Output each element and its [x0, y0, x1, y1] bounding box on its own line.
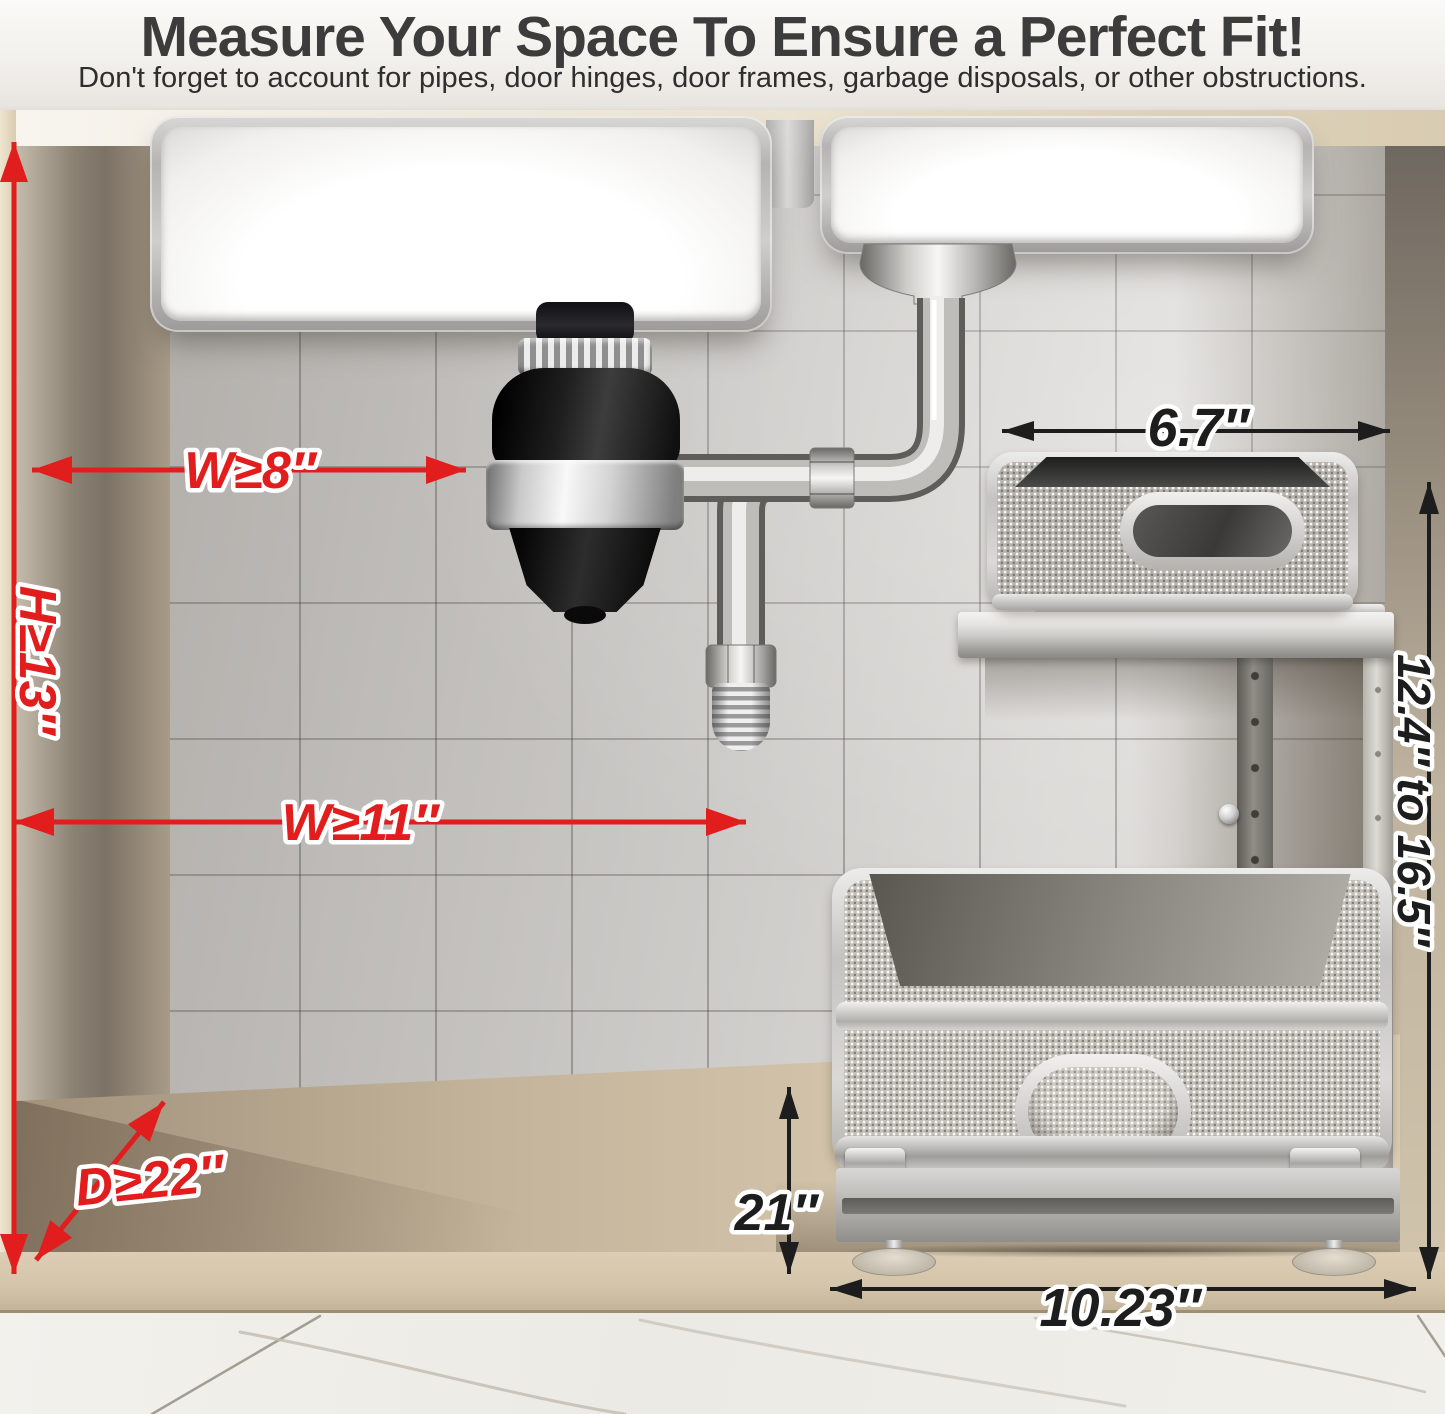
adjustment-screw: [1219, 804, 1239, 824]
page-title: Measure Your Space To Ensure a Perfect F…: [0, 4, 1445, 70]
page-subtitle: Don't forget to account for pipes, door …: [0, 62, 1445, 95]
floor-corner-shadow: [16, 1090, 696, 1252]
upper-basket-bottom-rim: [992, 594, 1353, 610]
lower-basket-front-rail: [836, 1002, 1388, 1030]
lower-mesh-basket: [832, 868, 1392, 1170]
threaded-pipe-end: [712, 683, 770, 751]
cabinet-left-wall: [16, 146, 170, 1252]
cabinet-left-frame: [0, 110, 16, 1255]
adjustable-post: [1237, 652, 1273, 882]
upper-mesh-basket: [987, 452, 1358, 610]
suction-foot-right: [1292, 1248, 1376, 1276]
upper-basket-opening: [1015, 457, 1330, 487]
disposal-steel-band: [486, 460, 684, 530]
left-sink-interior: [161, 127, 761, 321]
base-slot: [842, 1198, 1394, 1214]
measurement-infographic: Measure Your Space To Ensure a Perfect F…: [0, 0, 1445, 1414]
left-sink-basin: [150, 116, 772, 332]
disposal-upper-body: [492, 368, 680, 470]
organizer-base: [836, 1168, 1400, 1242]
right-sink-basin: [820, 116, 1314, 254]
right-sink-interior: [831, 127, 1303, 243]
under-shelf-shadow: [985, 656, 1363, 720]
upper-shelf: [958, 612, 1394, 658]
suction-foot-left: [852, 1248, 936, 1276]
sink-divider: [766, 120, 814, 208]
marble-floor: [0, 1313, 1445, 1414]
cabinet-base: [0, 1252, 1445, 1313]
upper-basket-window: [1120, 492, 1305, 570]
lower-basket-opening: [854, 874, 1366, 986]
disposal-outlet: [564, 606, 606, 624]
header: Measure Your Space To Ensure a Perfect F…: [0, 0, 1445, 112]
